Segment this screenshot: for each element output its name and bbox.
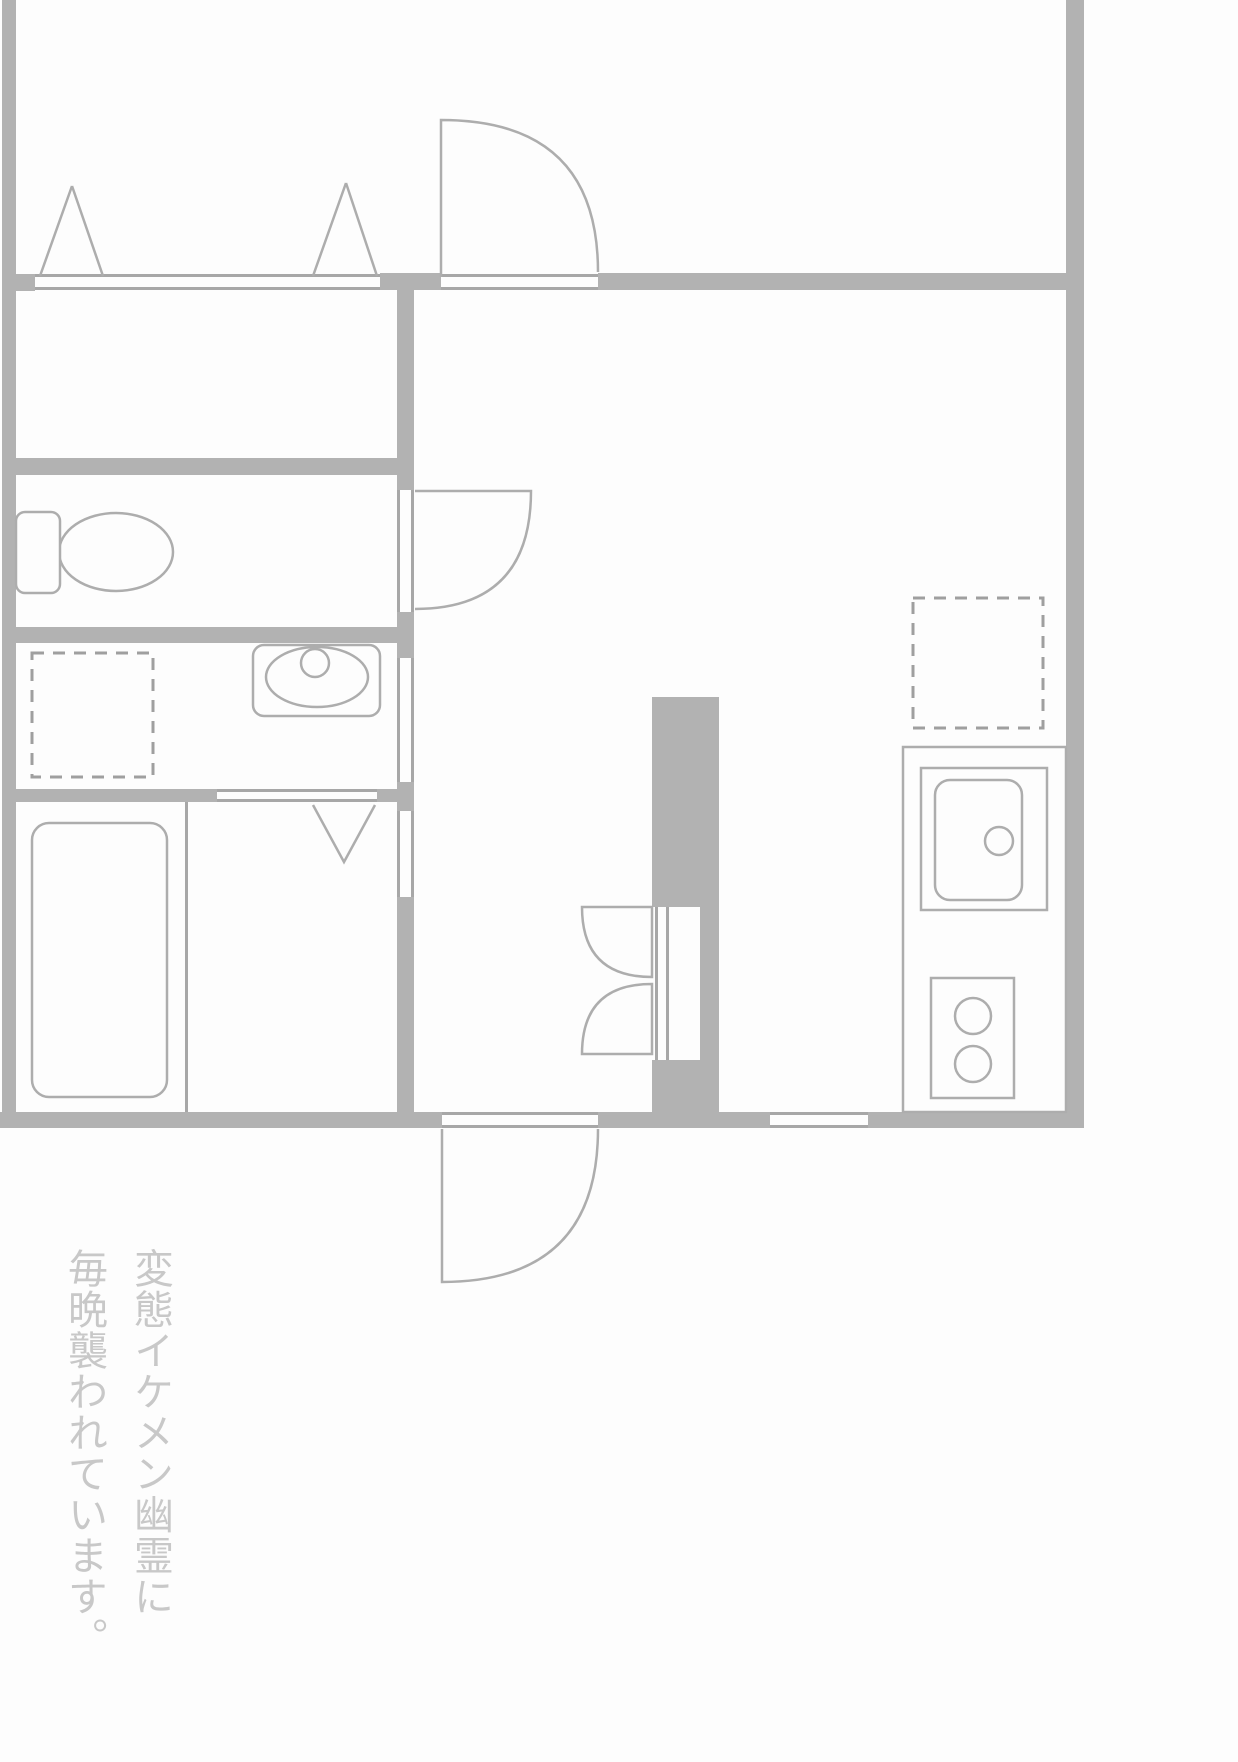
entrance-threshold-line2	[441, 287, 598, 290]
pillar-doorframe-line2	[666, 907, 669, 1060]
toilet-doorframe-line2	[411, 490, 414, 612]
bath-slide-line2	[217, 799, 377, 802]
hall-west-wall-lower	[397, 897, 414, 1112]
toilet-door	[415, 491, 531, 609]
fixtures	[16, 512, 1066, 1112]
balcony-threshold-line2	[442, 1125, 598, 1128]
bath-partition-line	[185, 802, 188, 1112]
hall-west-wall-mid1	[397, 612, 414, 658]
pillar-lower-wall	[700, 907, 719, 1060]
stove-burner-top	[955, 998, 991, 1034]
bottom-wall-west	[0, 1112, 442, 1128]
window-top-line2	[35, 287, 380, 290]
bath-doorframe-line2	[411, 811, 414, 897]
closet-toilet-wall	[16, 458, 414, 475]
toilet	[16, 512, 173, 593]
folding-door-leaf-upper	[582, 907, 652, 977]
bottom-wall-center	[598, 1112, 770, 1128]
bottom-wall-east	[868, 1112, 1084, 1128]
bathtub	[32, 823, 167, 1097]
washroom-faucet	[301, 649, 329, 677]
caption-text: 変態イケメン幽霊に 毎晩襲われています。	[51, 1248, 183, 1678]
toilet-washroom-wall	[16, 627, 414, 643]
pillar-doorframe-line1	[655, 907, 658, 1060]
kitchen-faucet	[985, 827, 1013, 855]
kitchen-counter-outline	[903, 747, 1066, 1112]
washroom-sink	[253, 645, 380, 716]
kitchen-counter	[903, 747, 1066, 1112]
toilet-tank	[16, 512, 60, 593]
washroom-bath-wall-left	[16, 789, 217, 802]
hall-west-wall-upper	[397, 290, 414, 490]
refrigerator-space	[913, 598, 1043, 728]
stove-burner-bottom	[955, 1046, 991, 1082]
right-wall	[1066, 0, 1084, 1128]
folding-door-leaf-lower	[582, 984, 652, 1054]
hall-west-wall-mid2	[397, 782, 414, 811]
window-triangle-right-icon	[313, 183, 377, 276]
balcony-door	[442, 1129, 598, 1282]
left-wall	[2, 0, 16, 1128]
washroom-doorframe-line2	[411, 658, 414, 782]
top-wall-west-block	[16, 274, 35, 291]
stove	[931, 978, 1014, 1098]
top-wall-east	[598, 273, 1066, 290]
washroom-doorframe-line1	[397, 658, 400, 782]
bath-door-triangle-icon	[313, 805, 375, 862]
window-top-line1	[35, 274, 380, 277]
washing-machine-space	[32, 653, 153, 777]
bath-doorframe-line1	[397, 811, 400, 897]
center-pillar	[652, 697, 719, 907]
toilet-doorframe-line1	[397, 490, 400, 612]
window-bottom-line1	[770, 1112, 868, 1115]
floorplan-page: 変態イケメン幽霊に 毎晩襲われています。	[0, 0, 1238, 1762]
entrance-door	[441, 120, 598, 277]
balcony-threshold-line1	[442, 1112, 598, 1115]
window-triangle-left-icon	[40, 186, 103, 276]
top-wall-center-block	[380, 273, 441, 290]
toilet-bowl	[59, 513, 173, 591]
floorplan-drawing	[0, 0, 1238, 1762]
doors	[415, 120, 652, 1282]
entrance-threshold-line1	[441, 274, 598, 277]
bath-slide-line1	[217, 789, 377, 792]
window-bottom-line2	[770, 1125, 868, 1128]
pillar-bottom-block	[652, 1060, 719, 1112]
